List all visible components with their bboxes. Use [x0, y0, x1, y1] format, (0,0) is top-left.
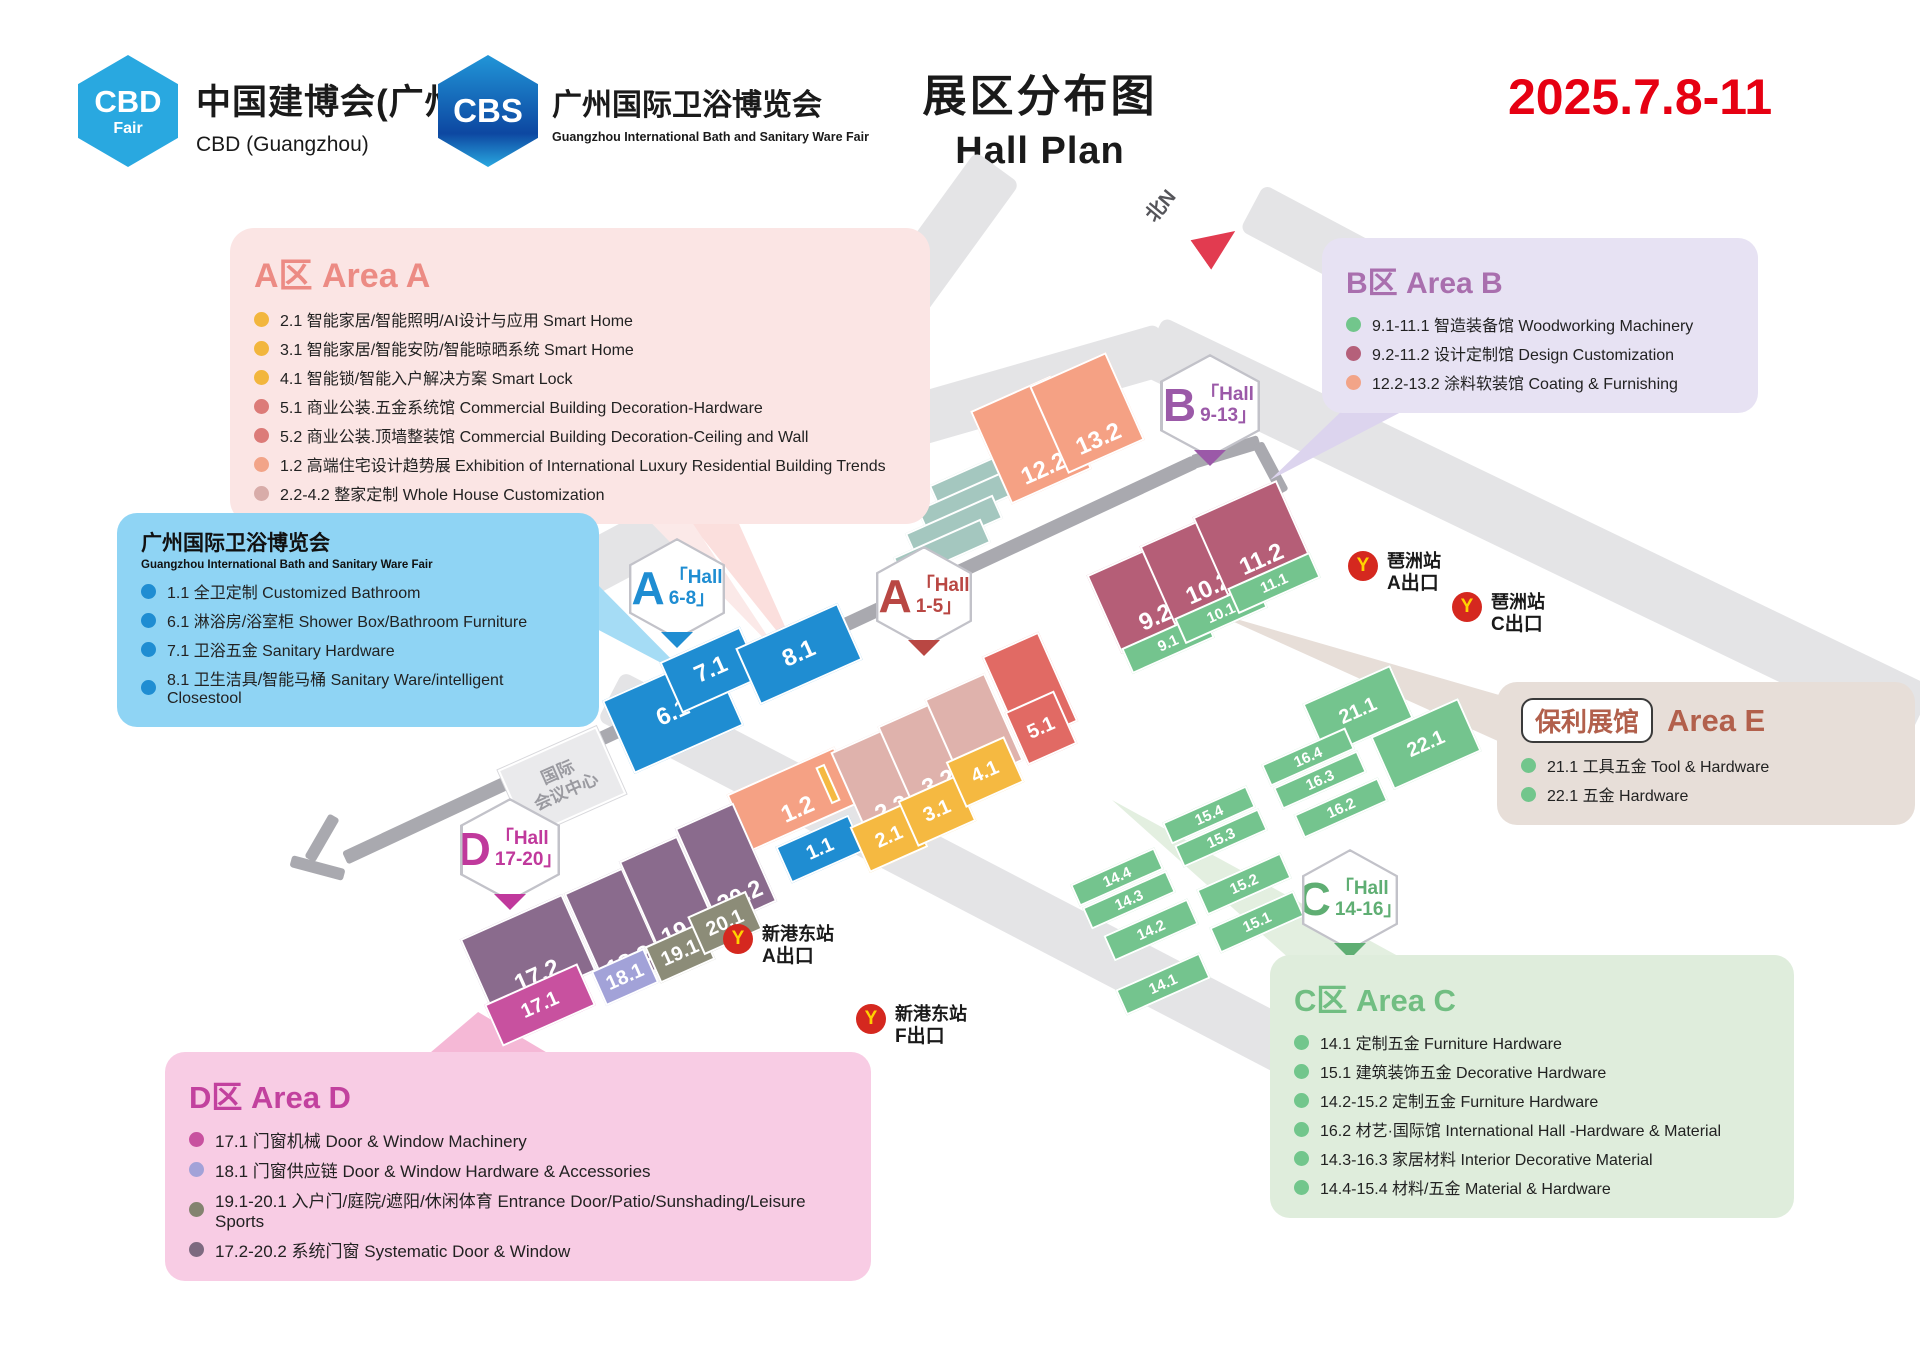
cbd-subtitle: CBD (Guangzhou) — [196, 133, 473, 157]
legend-item: 17.1 门窗机械 Door & Window Machinery — [215, 1127, 527, 1152]
page-title: 展区分布图 Hall Plan — [880, 60, 1200, 173]
legend-area-c: C区 Area C 14.1 定制五金 Furniture Hardware 1… — [1270, 955, 1794, 1218]
legend-area-a: A区 Area A 2.1 智能家居/智能照明/AI设计与应用 Smart Ho… — [230, 228, 930, 524]
legend-item: 18.1 门窗供应链 Door & Window Hardware & Acce… — [215, 1157, 651, 1182]
badge-hall-9-13: B 「Hall9-13」 — [1160, 354, 1260, 458]
legend-item: 14.1 定制五金 Furniture Hardware — [1320, 1030, 1562, 1054]
cbd-logo-text: CBD — [94, 84, 161, 120]
legend-item: 9.2-11.2 设计定制馆 Design Customization — [1372, 341, 1674, 365]
legend-item: 1.2 高端住宅设计趋势展 Exhibition of Internationa… — [280, 452, 886, 476]
badge-hall-14-16: C 「Hall14-16」 — [1302, 849, 1398, 951]
legend-item: 22.1 五金 Hardware — [1547, 782, 1688, 806]
legend-item: 19.1-20.1 入户门/庭院/遮阳/休闲体育 Entrance Door/P… — [215, 1187, 847, 1232]
cbs-subtitle: Guangzhou International Bath and Sanitar… — [552, 130, 869, 144]
legend-item: 21.1 工具五金 Tool & Hardware — [1547, 753, 1769, 777]
legend-area-d: D区 Area D 17.1 门窗机械 Door & Window Machin… — [165, 1052, 871, 1281]
page-title-en: Hall Plan — [880, 130, 1200, 173]
badge-tail — [908, 640, 940, 656]
walkway-terminus — [304, 813, 339, 862]
walkway-terminus — [289, 855, 345, 881]
station-pazhou-a: Y 琶洲站A出口 — [1348, 551, 1441, 595]
event-date: 2025.7.8-11 — [1508, 68, 1772, 126]
legend-item: 12.2-13.2 涂料软装馆 Coating & Furnishing — [1372, 370, 1678, 394]
legend-item: 3.1 智能家居/智能安防/智能晾晒系统 Smart Home — [280, 336, 634, 360]
legend-area-b-title: B区 Area B — [1346, 258, 1734, 302]
cbd-title: 中国建博会(广州) — [196, 74, 473, 125]
cbd-logo-subtext: Fair — [113, 120, 142, 138]
legend-area-a-title: A区 Area A — [254, 248, 906, 297]
page-title-cn: 展区分布图 — [880, 60, 1200, 124]
legend-item: 4.1 智能锁/智能入户解决方案 Smart Lock — [280, 365, 573, 389]
legend-area-e-title: Area E — [1667, 703, 1765, 739]
metro-icon: Y — [856, 1004, 886, 1034]
badge-hall-1-5: A 「Hall1-5」 — [876, 546, 972, 648]
legend-area-e: 保利展馆 Area E 21.1 工具五金 Tool & Hardware 22… — [1497, 682, 1915, 825]
legend-item: 14.3-16.3 家居材料 Interior Decorative Mater… — [1320, 1146, 1653, 1170]
legend-bath-title: 广州国际卫浴博览会 — [141, 527, 575, 557]
badge-hall-6-8: A 「Hall6-8」 — [629, 538, 725, 640]
legend-item: 5.2 商业公装.顶墙整装馆 Commercial Building Decor… — [280, 423, 808, 447]
compass-north-label: 北N — [1137, 182, 1181, 227]
legend-item: 8.1 卫生洁具/智能马桶 Sanitary Ware/intelligent … — [167, 666, 575, 708]
legend-item: 1.1 全卫定制 Customized Bathroom — [167, 579, 420, 603]
badge-tail — [494, 894, 526, 910]
legend-item: 16.2 材艺·国际馆 International Hall -Hardware… — [1320, 1117, 1721, 1141]
cbs-title-block: 广州国际卫浴博览会 Guangzhou International Bath a… — [552, 80, 869, 144]
cbs-title: 广州国际卫浴博览会 — [552, 80, 869, 124]
legend-area-e-pill: 保利展馆 — [1521, 698, 1653, 743]
metro-icon: Y — [1348, 551, 1378, 581]
cbd-fair-logo: CBD Fair — [78, 55, 178, 167]
legend-item: 7.1 卫浴五金 Sanitary Hardware — [167, 637, 395, 661]
legend-bath-subtitle: Guangzhou International Bath and Sanitar… — [141, 559, 575, 571]
legend-item: 6.1 淋浴房/浴室柜 Shower Box/Bathroom Furnitur… — [167, 608, 527, 632]
legend-item: 2.2-4.2 整家定制 Whole House Customization — [280, 481, 605, 505]
legend-area-d-title: D区 Area D — [189, 1072, 847, 1117]
station-xingangdong-f: Y 新港东站F出口 — [856, 1004, 967, 1048]
legend-item: 14.4-15.4 材料/五金 Material & Hardware — [1320, 1175, 1611, 1199]
legend-item: 2.1 智能家居/智能照明/AI设计与应用 Smart Home — [280, 307, 633, 331]
metro-icon: Y — [1452, 592, 1482, 622]
compass-north-icon — [1190, 216, 1245, 270]
cbd-title-block: 中国建博会(广州) CBD (Guangzhou) — [196, 74, 473, 157]
legend-item: 9.1-11.1 智造装备馆 Woodworking Machinery — [1372, 312, 1693, 336]
legend-area-b: B区 Area B 9.1-11.1 智造装备馆 Woodworking Mac… — [1322, 238, 1758, 413]
cbs-logo-text: CBS — [453, 92, 523, 130]
badge-hall-17-20: D 「Hall17-20」 — [460, 798, 560, 902]
legend-item: 17.2-20.2 系统门窗 Systematic Door & Window — [215, 1237, 570, 1262]
badge-tail — [661, 632, 693, 648]
station-pazhou-c: Y 琶洲站C出口 — [1452, 592, 1545, 636]
legend-bath-fair: 广州国际卫浴博览会 Guangzhou International Bath a… — [117, 513, 599, 727]
legend-item: 14.2-15.2 定制五金 Furniture Hardware — [1320, 1088, 1598, 1112]
legend-item: 5.1 商业公装.五金系统馆 Commercial Building Decor… — [280, 394, 763, 418]
station-xingangdong-a: Y 新港东站A出口 — [723, 924, 834, 968]
metro-icon: Y — [723, 924, 753, 954]
legend-item: 15.1 建筑装饰五金 Decorative Hardware — [1320, 1059, 1606, 1083]
legend-area-c-title: C区 Area C — [1294, 975, 1770, 1020]
